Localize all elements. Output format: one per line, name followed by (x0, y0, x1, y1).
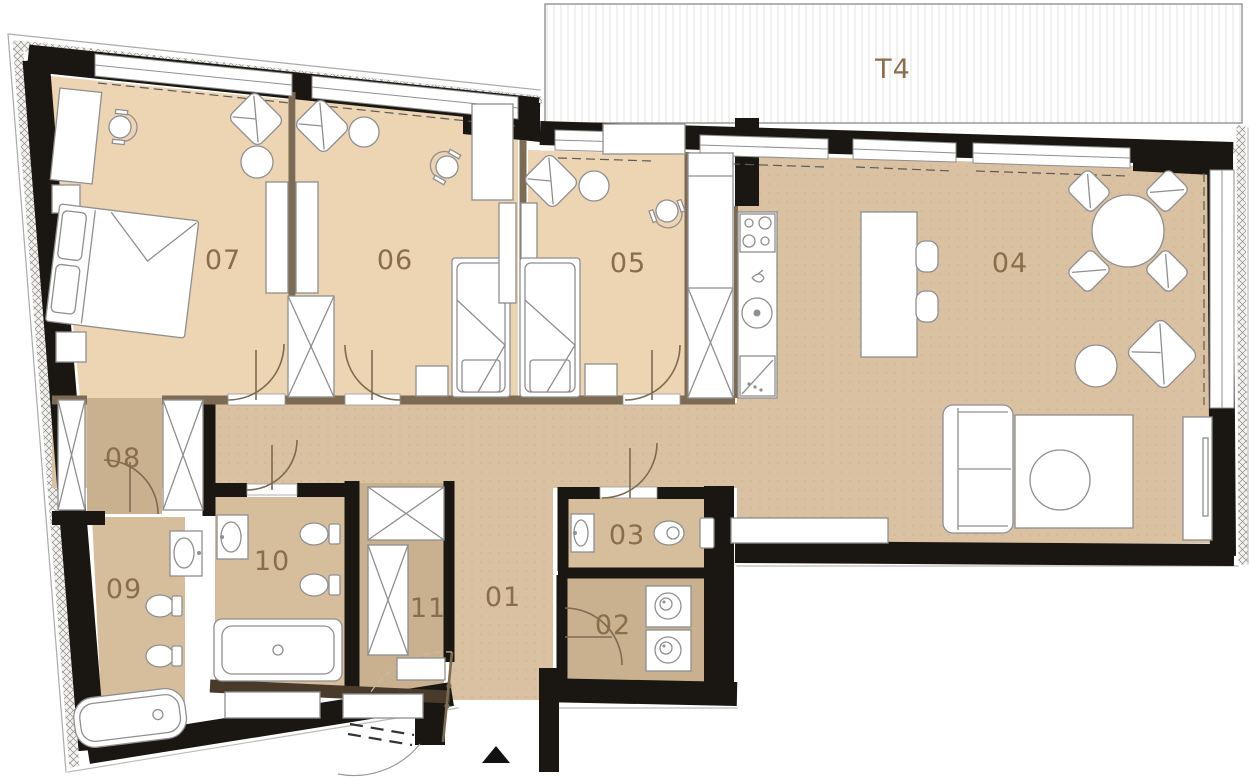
dining-table (1092, 195, 1164, 267)
bed-single (520, 258, 580, 397)
bathroom-sink (571, 514, 594, 552)
room-label-03: 03 (609, 520, 645, 551)
side-table (349, 117, 379, 147)
washing-machine (646, 586, 691, 627)
side-table (241, 146, 273, 178)
nightstand (416, 366, 448, 396)
bar-stool (916, 291, 938, 322)
floor-plan-page: 01 02 03 04 05 06 07 08 09 10 11 T4 (0, 0, 1250, 777)
desk (50, 88, 101, 184)
closet (266, 182, 288, 293)
room-label-04: 04 (992, 248, 1028, 279)
kitchen-island (861, 212, 917, 357)
bidet-icon (146, 645, 182, 667)
bathroom-sink (217, 515, 248, 559)
desk (603, 124, 685, 154)
room-label-02: 02 (595, 610, 631, 641)
closet (296, 182, 318, 293)
toilet-icon (300, 523, 340, 545)
side-table (1075, 345, 1117, 387)
wall-bottom-living (735, 552, 1234, 555)
wall-kitchen-jut (735, 118, 759, 206)
nightstand (56, 332, 86, 362)
room-label-01: 01 (485, 582, 521, 613)
room-label-07: 07 (205, 245, 241, 276)
room-label-05: 05 (610, 248, 646, 279)
side-table (579, 171, 609, 201)
wall-bottom-utility (540, 690, 737, 694)
sideboard (731, 518, 888, 543)
room-label-06: 06 (377, 245, 413, 276)
bench (397, 658, 445, 680)
room-label-11: 11 (410, 593, 446, 624)
room-label-09: 09 (106, 574, 142, 605)
kitchen-counter (738, 212, 777, 398)
toilet-icon (146, 595, 182, 617)
bathroom-sink (170, 531, 202, 576)
desk (472, 104, 513, 200)
wall-niche (225, 692, 320, 718)
bidet-icon (300, 574, 340, 596)
bar-stool (916, 241, 938, 272)
coffee-table (1030, 450, 1090, 510)
bathtub (214, 619, 342, 681)
sofa (943, 405, 1013, 533)
insulation-right (1241, 130, 1243, 560)
nightstand (585, 364, 617, 396)
tv-bench (1183, 417, 1212, 540)
terrace-label: T4 (874, 54, 911, 85)
closet (499, 203, 516, 303)
room-label-10: 10 (254, 546, 290, 577)
entrance-arrow (482, 746, 510, 763)
tall-wardrobe (688, 153, 733, 398)
wall-niche (343, 694, 423, 718)
floor-plan: 01 02 03 04 05 06 07 08 09 10 11 T4 (0, 0, 1250, 777)
room-label-08: 08 (105, 443, 141, 474)
washing-machine (646, 630, 691, 671)
bed-double (45, 204, 198, 338)
